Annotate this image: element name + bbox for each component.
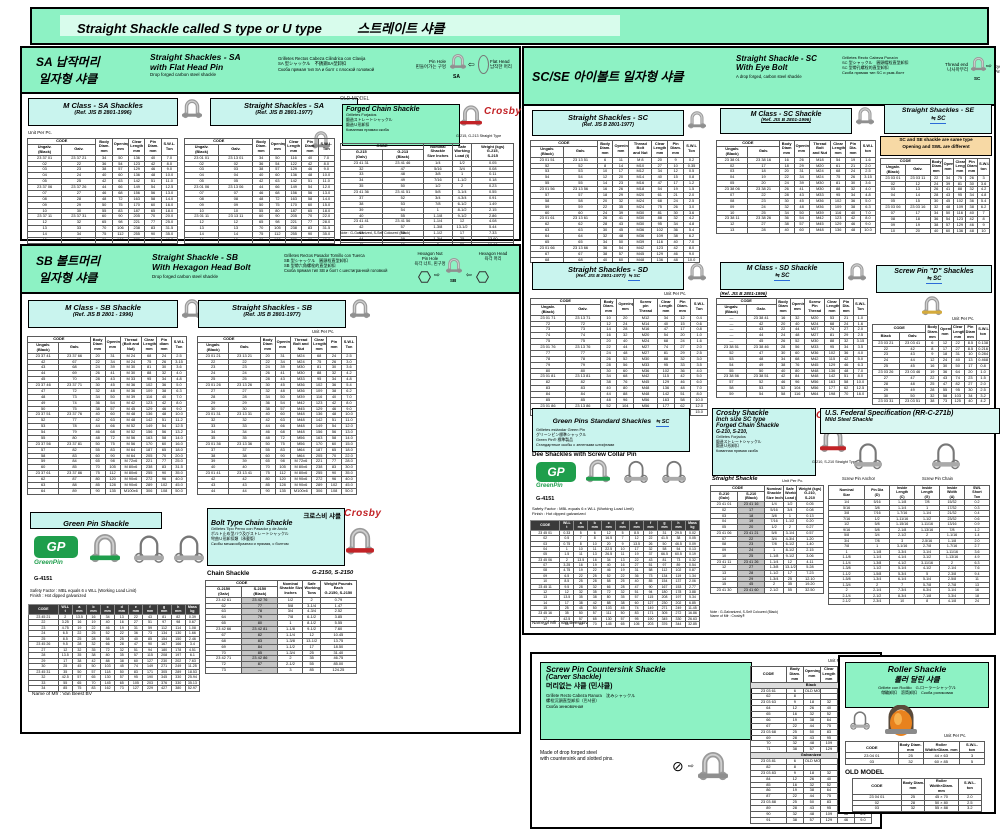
table-cell: 203 xyxy=(644,622,658,627)
table-cell: 23 03 31 xyxy=(873,399,900,405)
table-cell: 129 xyxy=(820,817,837,823)
table-cell: 0.468 xyxy=(977,358,990,364)
column-header: BodyDiammm xyxy=(90,337,105,354)
sb-hex-nut-ko: 육각 너트, 핀구멍 xyxy=(414,261,445,266)
straight-sa-title-box: Straight Shackles - SA (Ref. JIS B 2801-… xyxy=(210,98,358,126)
forged-note: Note : G-Galvanized, S-Self Coloured (Bl… xyxy=(340,231,410,235)
table-cell: 20 xyxy=(905,228,930,234)
column-header: Black xyxy=(873,332,900,340)
section-sa: SA 납작머리 일자형 샤클 Straight Shackles - SA wi… xyxy=(20,46,521,241)
table-cell: 44 xyxy=(229,488,260,494)
sc-sub: A drop forged, carbon steel shackle xyxy=(736,74,840,79)
m-class-sa-ref: (Ref. JIS B 2801-1996) xyxy=(29,110,177,116)
column-header: S.W.L.ton xyxy=(959,742,984,753)
sc-title2: With Eye Bolt xyxy=(736,63,840,72)
shackle-icon xyxy=(450,53,466,72)
column-header: Pindiammm xyxy=(157,337,172,354)
column-header: Openingmm xyxy=(613,141,629,158)
table-cell: 380 xyxy=(171,686,185,691)
column-header: amm xyxy=(72,605,86,615)
table-cell: 60 xyxy=(794,228,809,234)
green-pin-wordmark: GreenPin xyxy=(536,483,563,489)
catalog-page: Straight Shackle called S type or U type… xyxy=(0,0,1000,831)
green-pin-mfr: Name of Mfr : Van Beest BV xyxy=(32,692,92,697)
table-cell: 13-1/2 xyxy=(783,565,796,571)
countersink-note2: with countersink and slotted pins. xyxy=(540,756,614,762)
table-cell: 127 xyxy=(129,686,143,691)
table-cell: 306 xyxy=(312,488,327,494)
table-cell: 89 xyxy=(59,488,90,494)
table-cell: 198 xyxy=(825,392,839,398)
shackle-icon xyxy=(446,257,462,276)
column-header: InsideWidth(A) xyxy=(940,486,965,500)
column-header: CODE xyxy=(873,325,926,333)
sb-title2: With Hexagon Head Bolt xyxy=(152,262,280,272)
table-row: 73—385124.25 xyxy=(206,668,357,674)
sa-title1: Straight Shackles - SA xyxy=(150,52,272,62)
table-cell: 70 xyxy=(839,392,853,398)
column-header: BodyDiam.mm xyxy=(926,325,939,341)
sb-ko2: 일자형 샤클 xyxy=(39,271,98,285)
gps-mfr: Name of Mfr : Van Beest BV xyxy=(532,620,588,625)
screw-pin-d-title: Screw Pin "D" Shackles xyxy=(877,268,991,275)
m-class-sd-ref: (Ref. JIS B 2801-1996) xyxy=(720,291,767,296)
crosby-logo: Crosby xyxy=(344,508,381,519)
column-header: Galv. xyxy=(62,144,96,155)
screw-pin-chain-icon xyxy=(932,440,960,474)
table-cell: 50.0 xyxy=(172,488,187,494)
table-cell: 0.138 xyxy=(977,340,990,346)
sb-ml4: Скоба прямая тип SB и болт с шестигранно… xyxy=(284,268,410,273)
column-header: Pinmm xyxy=(327,337,342,354)
shackle-icon xyxy=(848,262,866,284)
sc-eye-pin: Eye Pin xyxy=(994,64,1000,74)
sa-title2: with Flat Head Pin xyxy=(150,62,272,72)
us-federal-title: U.S. Federal Specification (RR-C-271b) xyxy=(825,410,995,417)
table-cell: 90 xyxy=(260,488,275,494)
column-header: S.W.L.Ton xyxy=(161,139,177,156)
table-row: 23 01 0123 13 013450116407.0 xyxy=(185,155,335,161)
column-header: Body Diam.mm xyxy=(901,779,924,795)
m-class-sb-title-box: M Class - SB Shackle (Ref. JIS B 2801 - … xyxy=(28,300,178,328)
column-header: Galv. xyxy=(565,304,600,315)
column-header: CODE xyxy=(853,779,902,795)
sa-sub: Drop forged carbon steel shackle xyxy=(150,72,272,77)
bolt-type-ko: 크로스비 샤클 xyxy=(211,510,341,520)
table-cell: 40 xyxy=(930,228,942,234)
shackle-red-pin-icon xyxy=(460,104,482,130)
straight-sa-table: CODEBodyDiam.mmOpeningmmClearLengthmmPin… xyxy=(184,138,335,250)
shackle-outline-icon xyxy=(662,458,686,487)
column-header: Weight PoundsEachG-2150, S-2150 xyxy=(320,581,356,598)
column-header: WLLt xyxy=(560,521,574,531)
column-header: RollerWidth×Diam. mm xyxy=(923,742,959,753)
green-pin-wordmark: GreenPin xyxy=(34,559,63,566)
us-federal-box: U.S. Federal Specification (RR-C-271b) M… xyxy=(820,408,1000,434)
column-header: dmm xyxy=(616,521,630,531)
column-header: Thread(Bolt andNut) xyxy=(120,337,142,354)
column-header: ClearLengthmm xyxy=(954,159,966,176)
column-header: Pin Dia(D) xyxy=(865,486,890,500)
m-class-sd-approx: ≒ SC xyxy=(774,273,789,281)
column-header: Weight (kgs)G-215,S-215 xyxy=(472,144,514,161)
straight-sb-title-box: Straight Shackles - SB (Ref. JIS B 2801-… xyxy=(198,300,346,328)
gp-logo-text: GP xyxy=(547,465,564,479)
table-cell: M48 xyxy=(809,228,831,234)
g210-caption: G-210, S-210 Straight Type xyxy=(812,460,857,464)
column-header: InsideLength(C) xyxy=(890,486,915,500)
sa-ko1: 납작머리 xyxy=(56,55,100,69)
section-sb: SB 볼트머리 일자형 샤클 Straight Shackle - SB Wit… xyxy=(20,244,521,734)
m-class-sa-table: CODEBodyDiam.mmOpeningmmClearLengthmmPin… xyxy=(27,138,178,256)
straight-se-title: Straight Shackles - SE xyxy=(885,107,991,114)
g2150-label: G-2150, S-2150 xyxy=(312,570,353,576)
table-cell: 125 xyxy=(951,399,964,405)
table-cell: 32.85 xyxy=(685,622,699,627)
screw-pin-d-title-box: Screw Pin "D" Shackles ≒ SC xyxy=(876,265,992,293)
table-cell: 73 xyxy=(939,399,952,405)
forged-chain-box: Forged Chain Shackle Grilletes Forjados … xyxy=(342,104,460,146)
column-header: ClearLengthmm xyxy=(129,139,145,156)
column-header: BodyDiam.mm xyxy=(597,141,613,158)
countersink-sub: (Carver Shackle) xyxy=(546,674,746,681)
table-cell: 23 41 30 xyxy=(711,588,738,594)
column-header: InsideLength(G) xyxy=(915,486,940,500)
table-row: 2-1/22-3/41084-1/824 xyxy=(829,599,990,604)
column-header: fmm xyxy=(644,521,658,531)
table-cell: 427 xyxy=(157,686,171,691)
column-header: S.W.LTon xyxy=(684,141,700,158)
table-cell: 32 xyxy=(901,806,924,812)
table-cell: 24 xyxy=(965,599,990,604)
table-cell: 73 xyxy=(206,668,242,674)
shackle-icon xyxy=(856,106,874,128)
column-header: BodyDiam.mm xyxy=(96,139,112,156)
forged-caption: G-215, G-213 Straight Type xyxy=(456,134,501,138)
roller-ko: 롤러 달린 샤클 xyxy=(847,674,987,685)
column-header: ClearLengthmm xyxy=(831,141,846,158)
straight-sd-table: CODEBodyDiam.mmOpeningmmScrewpinThreadCl… xyxy=(530,298,708,416)
table-cell: 58 xyxy=(776,392,790,398)
table-row: 648990135M100x630610850.0 xyxy=(28,488,187,494)
table-row: 595458116M641987016.0 xyxy=(717,392,868,398)
column-header: CODE xyxy=(846,742,899,753)
gps-finish: Finish : Hot dipped galvanized xyxy=(532,511,634,516)
sd-approx: ≒ SC xyxy=(628,274,640,281)
countersink-ko: 머리없는 샤클 (민샤클) xyxy=(546,681,746,691)
table-cell: 73 xyxy=(115,686,129,691)
column-header: Openingmm xyxy=(269,139,285,156)
gps-sub: Dee Shackles with Screw Collar Pin xyxy=(532,451,637,458)
table-cell: 135 xyxy=(275,488,290,494)
shackle-icon xyxy=(182,98,202,122)
column-header: BodyDiam.mm xyxy=(600,299,617,316)
column-header: ThreadBolt andNut xyxy=(290,337,312,354)
table-cell: M100x6 xyxy=(290,488,312,494)
table-cell: 48 xyxy=(846,228,861,234)
green-pins-std-approx: ≒ SC xyxy=(656,419,670,427)
crosby-box-title: Crosby Shackle xyxy=(716,410,812,417)
column-header: CODE xyxy=(29,605,59,615)
straight-sb-table: CODEBodyDiammmOpeningmmThreadBolt andNut… xyxy=(197,336,357,495)
g210-label: Straight Shackle xyxy=(712,476,757,482)
table-cell: M64 xyxy=(804,392,825,398)
column-header: ScrewpinThread xyxy=(634,299,658,316)
green-pin-title-box: Green Pin Shackle xyxy=(30,512,162,529)
table-row: 23 03 2123 03 41612228.50.138 xyxy=(873,340,990,346)
column-header: Ungalv.(Black) xyxy=(531,304,566,315)
table-cell: 5 xyxy=(959,759,984,765)
column-header: S.W.LTon xyxy=(172,337,187,354)
table-cell: 28 xyxy=(748,228,779,234)
column-header: Ungalv.(Black) xyxy=(28,144,62,155)
screw-pin-anchor-label: Screw Pin Anchor xyxy=(842,476,875,481)
table-cell: 40 xyxy=(779,228,794,234)
table-row: 23 03 0623 03 163248109386.2 xyxy=(881,205,990,211)
m-class-sc-title-box: M Class - SC Shackle (Ref. JIS B 2801-19… xyxy=(720,108,852,134)
column-header: Ungalv.(Black) xyxy=(198,342,229,353)
shackle-outline-icon xyxy=(134,532,164,568)
sa-type-label: SA xyxy=(453,74,460,80)
table-cell: 306 xyxy=(142,488,157,494)
column-header: Galv. xyxy=(219,144,253,155)
column-header: S.W.L.Ton xyxy=(318,139,334,156)
column-header: ClearLengthmm xyxy=(951,325,964,341)
column-header: fmm xyxy=(143,605,157,615)
sb-ko1: 볼트머리 xyxy=(56,254,100,268)
straight-sa-ref: (Ref. JIS B 2801-1977) xyxy=(211,110,357,116)
column-header: NominalSize xyxy=(829,486,865,500)
column-header: Weight (kgs)G-210,S-210 xyxy=(796,486,823,502)
table-cell: 145 xyxy=(602,622,616,627)
banner-title: Straight Shackle called S type or U type xyxy=(77,21,322,36)
table-cell: 10 xyxy=(881,228,906,234)
column-header: Masskg xyxy=(185,605,199,615)
column-header: CODE xyxy=(751,667,787,683)
m-class-sd-table: CODEBodyDiammmOpeningmmScrewPinThreadCle… xyxy=(716,298,868,398)
table-cell: OLD MODEL xyxy=(803,759,820,765)
g4151-label: G-4151 xyxy=(34,576,52,582)
table-row: 348575831627312722942738052.97 xyxy=(29,686,200,691)
table-row: 23 37 1123 37 3160902057020.0 xyxy=(28,214,178,220)
table-row: 444490135M100x630610850.0 xyxy=(198,488,357,494)
column-header: PinDiam.mm xyxy=(302,139,318,156)
straight-sc-title-box: Straight Shackles - SC (Ref. JIS B 2801-… xyxy=(532,110,684,136)
m-class-sb-ref: (Ref. JIS B 2801 - 1996) xyxy=(29,312,177,318)
roller-unit: Unit Per Pc. xyxy=(944,733,966,738)
column-header: BodyDiam.mm xyxy=(786,667,803,683)
table-cell: 23 41 60 xyxy=(738,588,765,594)
column-header: Masskg xyxy=(685,521,699,531)
table-cell: 10 xyxy=(890,599,915,604)
top-banner: Straight Shackle called S type or U type… xyxy=(30,7,989,45)
column-header: BodyDiam.mm xyxy=(253,139,269,156)
roller-old-model-table: CODEBody Diam.mmRollerWidth×Diam.mmS.W.L… xyxy=(852,778,982,812)
table-cell: 23 03 51 xyxy=(899,399,926,405)
column-header: S-2150(Black) xyxy=(242,586,278,597)
g210-mfr: Name of Mfr : Crosby® xyxy=(710,614,778,618)
roller-table: CODEBody Diam.mmRollerWidth×Diam. mmS.W.… xyxy=(845,741,985,765)
screw-pin-d-approx: ≒ SC xyxy=(926,276,941,284)
straight-sb-title: Straight Shackles - SB xyxy=(199,303,345,312)
crosby-logo: Crosby xyxy=(484,106,521,117)
table-cell: 48 xyxy=(966,228,978,234)
column-header: PinDia.mm xyxy=(846,141,861,158)
column-header: ScrewPinThread xyxy=(804,299,825,316)
table-cell: 16.0 xyxy=(853,392,867,398)
table-cell: 44 xyxy=(198,488,229,494)
m-class-sc-title: M Class - SC Shackle xyxy=(721,111,851,118)
table-cell: 55 × 88 xyxy=(925,806,959,812)
column-header: Openingmm xyxy=(942,159,954,176)
gps-ml4: Стандартные скобы с зелеными штифтами xyxy=(536,443,686,448)
column-header: S.W.LTon xyxy=(342,337,357,354)
se-note2: Opening and SWL are different xyxy=(881,144,991,151)
table-cell: 108 xyxy=(157,488,172,494)
column-header: hmm xyxy=(171,605,185,615)
banner-title-ko: 스트레이트 샤클 xyxy=(357,21,444,36)
roller-title: Roller Shackle xyxy=(847,664,987,674)
us-federal-table: NominalSizePin Dia(D)InsideLength(C)Insi… xyxy=(828,485,990,605)
sa-ml3: Скоба прямая тип SA и болт с плоской гол… xyxy=(278,67,412,72)
column-header: S.W.L.ton xyxy=(958,779,981,795)
shackle-gold-pin-icon xyxy=(922,295,942,319)
m-class-sb-title: M Class - SB Shackle xyxy=(29,303,177,312)
table-cell: 2-1/2 xyxy=(829,599,865,604)
table-cell: 70 xyxy=(588,622,602,627)
table-row: 033260 × 855 xyxy=(846,759,985,765)
se-note1: SC and SE shackle are same type xyxy=(881,137,991,144)
column-header: Openingmm xyxy=(112,139,128,156)
sb-type-label: SB xyxy=(450,278,456,283)
table-row: 23 01 0623 13 0644661495412.0 xyxy=(185,185,335,191)
column-header: NominalShackleSize Inches xyxy=(424,144,453,161)
table-cell: 64 xyxy=(28,488,59,494)
table-cell: 8 xyxy=(915,599,940,604)
section-sc-se: SC/SE 아이볼트 일자형 샤클 Straight Shackle - SC … xyxy=(522,46,996,635)
shackle-icon xyxy=(688,110,706,132)
column-header: SWLShortTon xyxy=(965,486,990,500)
column-header: amm xyxy=(574,521,588,531)
green-pins-std-box: Green Pins Standard Shackles ≒ SC Grille… xyxy=(532,408,690,452)
crosby-ml4: Кованная прямая скоба xyxy=(716,449,812,454)
chain-shackle-table: CODENominalShackle SizeInchesSafeWorking… xyxy=(205,580,357,674)
sb-sub: Drop forged carbon steel shackle xyxy=(152,274,280,279)
column-header: SafeWorkingLoad (t) xyxy=(452,144,472,161)
table-row: 13284060M481364810.0 xyxy=(717,228,876,234)
column-header: BodyDiammm xyxy=(260,337,275,354)
table-cell: 124.25 xyxy=(320,668,356,674)
gp-logo: GP xyxy=(536,462,576,482)
table-cell: 376 xyxy=(658,622,672,627)
column-header: dmm xyxy=(115,605,129,615)
sa-unit-label: Unit Per Pc. xyxy=(28,130,52,135)
column-header: CODE xyxy=(531,521,560,531)
column-header: ClearLengthmm xyxy=(652,141,668,158)
table-row: 23 37 0623 37 2644661495412.5 xyxy=(28,185,178,191)
chain-shackle-label: Chain Shackle xyxy=(207,570,249,577)
table-cell: 13 xyxy=(717,228,748,234)
table-cell: 32 xyxy=(898,759,923,765)
table-cell: 4.2 xyxy=(977,399,990,405)
table-cell: 344 xyxy=(671,622,685,627)
column-header: RollerWidth×Diam.mm xyxy=(925,779,959,795)
column-header: Galv. xyxy=(748,146,779,157)
table-cell: 03 xyxy=(853,806,902,812)
table-row: 913857129469.0 xyxy=(751,817,872,823)
bolt-ml4: Скобы мешкообразная и прямая, с болтом xyxy=(211,542,341,547)
us-federal-sub: Mild Steel Shackle xyxy=(825,417,995,423)
sb-header: SB 볼트머리 일자형 샤클 Straight Shackle - SB Wit… xyxy=(22,246,519,294)
straight-se-table: CODEBodyDiam.mmOpeningmmClearLengthmmPin… xyxy=(880,158,990,234)
straight-sc-table: CODEBodyDiam.mmOpeningmmThreadBoltand Nu… xyxy=(530,140,700,263)
table-cell: 10.0 xyxy=(861,228,876,234)
column-header: BodyDiam.mm xyxy=(930,159,942,176)
sa-code: SA xyxy=(36,55,52,69)
sc-ml4: Скоба прямая тип SC и рым-болт xyxy=(842,70,944,75)
shackle-icon xyxy=(688,262,706,284)
table-cell: 136 xyxy=(831,228,846,234)
table-cell: 85 xyxy=(58,686,72,691)
sa-pin-hole-ko: 핀들어가는 구멍 xyxy=(416,64,446,69)
no-head-icon: ⊘ xyxy=(672,758,684,775)
sc-thread-end-ko: 나사마무리 xyxy=(947,67,968,72)
green-pin-table: CODEWLLtammbmmcmmdmmemmfmmgmmhmmMasskg23… xyxy=(28,604,200,692)
table-cell: 4-1/8 xyxy=(940,599,965,604)
column-header: Galv. xyxy=(59,342,90,353)
m-class-sc-ref: (Ref. JIS B 2801-1996) xyxy=(721,118,851,123)
hexagon-icon xyxy=(418,271,431,283)
shackle-green-pin-icon xyxy=(90,532,120,568)
table-cell: 91 xyxy=(751,817,787,823)
column-header: Openingmm xyxy=(105,337,120,354)
column-header: ClearLengthmm xyxy=(820,667,837,683)
sd-unit-label: Unit Per Pc. xyxy=(664,291,686,296)
shackle-outline-icon xyxy=(850,709,870,733)
table-cell: 52.97 xyxy=(185,686,199,691)
g210-table: CODENominalShackleSize InchesSafeWorking… xyxy=(710,485,824,594)
column-header: Openingmm xyxy=(617,299,634,316)
table-cell: 3.2 xyxy=(958,806,981,812)
column-header: S.W.L.ton xyxy=(977,325,990,341)
column-header: G-215(Galv) xyxy=(341,149,383,160)
table-cell: 65 xyxy=(616,622,630,627)
column-header: Ungalv.(Black) xyxy=(28,342,59,353)
column-header: Openingmm xyxy=(939,325,952,341)
column-header: emm xyxy=(630,521,644,531)
column-header: PinDiam.mm xyxy=(668,141,684,158)
arrow-right-icon: ⇨ xyxy=(434,271,440,279)
green-pin-finish: Finish : Hot dipped galvanized xyxy=(30,593,136,598)
arrow-left-icon: ⇦ xyxy=(466,271,472,279)
screw-pin-d-unit: Unit Per Pc. xyxy=(952,316,974,321)
sa-ko2: 일자형 샤클 xyxy=(39,72,98,86)
table-cell: 15.0 xyxy=(691,409,708,415)
section-countersink: Screw Pin Countersink Shackle (Carver Sh… xyxy=(530,652,882,829)
column-header: Body Diam.mm xyxy=(898,742,923,753)
column-header: bmm xyxy=(86,605,100,615)
column-header: gmm xyxy=(157,605,171,615)
column-header: G-213(Black) xyxy=(382,149,424,160)
shackle-icon xyxy=(698,750,728,786)
table-cell: 85 xyxy=(303,668,320,674)
m-class-sc-table: CODEBodyDiammmOpeningmmThreadBoltand Nut… xyxy=(716,140,876,234)
table-cell: 60 xyxy=(942,228,954,234)
column-header: ThreadBoltand Nut xyxy=(629,141,652,158)
column-header: PinDiammm xyxy=(964,325,977,341)
arrow-right-icon: ⇨ xyxy=(688,762,694,770)
table-cell: 55 xyxy=(783,588,796,594)
